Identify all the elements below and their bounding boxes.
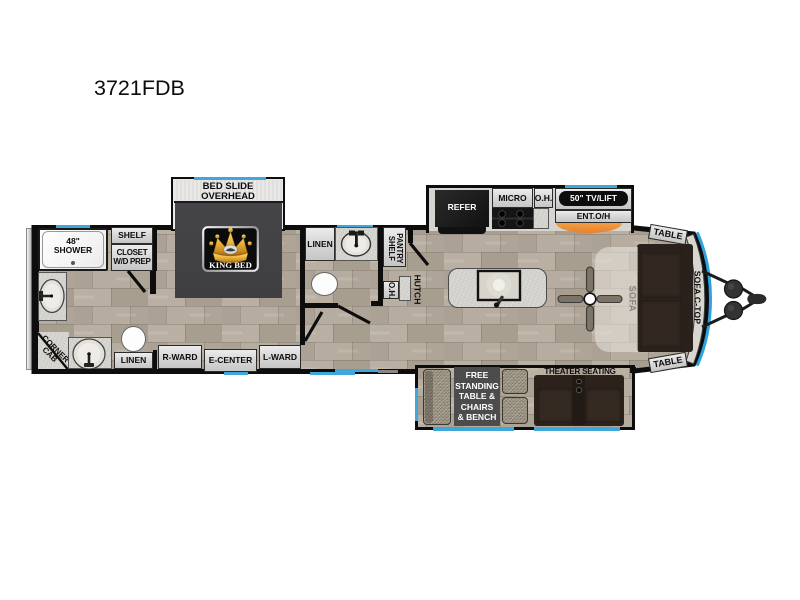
svg-text:KING BED: KING BED — [209, 260, 252, 270]
